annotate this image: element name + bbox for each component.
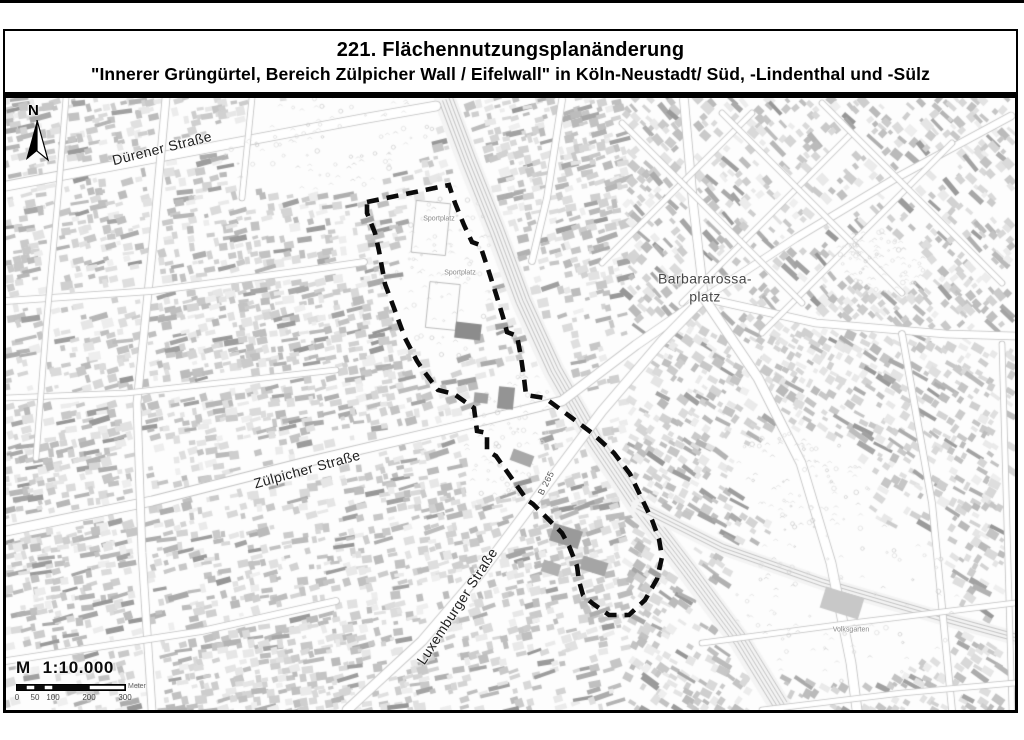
place-label-barbarossaplatz: Barbararossa- platz (658, 271, 752, 306)
scale-bar-segment (89, 685, 125, 690)
scale-unit: Meter (128, 683, 146, 690)
scale-indicator: M1:10.000 Meter 0 50 100 200 300 (16, 658, 186, 703)
scale-bar (16, 684, 126, 691)
title-box: 221. Flächennutzungsplanänderung "Innere… (3, 29, 1018, 95)
scale-tick: 100 (46, 693, 59, 702)
scale-tick: 300 (118, 693, 131, 702)
place-label-barbarossaplatz-line1: Barbararossa- (658, 271, 752, 289)
scale-tick-labels: 0 50 100 200 300 (16, 693, 186, 703)
place-label-barbarossaplatz-line2: platz (658, 288, 752, 306)
scale-bar-segment (35, 685, 44, 690)
scale-tick: 50 (31, 693, 40, 702)
scale-ratio: 1:10.000 (43, 658, 114, 677)
scale-tick: 0 (15, 693, 19, 702)
scale-tick: 200 (82, 693, 95, 702)
plan-subtitle: "Innerer Grüngürtel, Bereich Zülpicher W… (91, 64, 930, 85)
north-arrow-icon (22, 120, 52, 162)
plan-boundary-layer (6, 98, 1015, 710)
scale-prefix: M (16, 658, 31, 677)
scanned-plan-page: { "title": { "line1": "221. Flächennutzu… (0, 0, 1024, 740)
area-label-sportplatz-north: Sportplatz (423, 216, 455, 223)
scale-bar-segment (17, 685, 26, 690)
scale-bar-segment (44, 685, 53, 690)
north-label: N (28, 102, 39, 119)
north-arrow: N (18, 102, 60, 162)
page-top-rule (0, 0, 1024, 3)
area-label-sportplatz-south: Sportplatz (444, 270, 476, 277)
park-label-volksgarten: Volksgarten (833, 627, 870, 634)
scale-bar-segment (26, 685, 35, 690)
map-area: Dürener Straße Zülpicher Straße Luxembur… (3, 95, 1018, 713)
scale-bar-row: Meter (16, 684, 186, 691)
scale-bar-segment (53, 685, 89, 690)
scale-text: M1:10.000 (16, 658, 186, 678)
plan-title: 221. Flächennutzungsplanänderung (337, 39, 685, 62)
plan-boundary-outline (367, 185, 662, 615)
